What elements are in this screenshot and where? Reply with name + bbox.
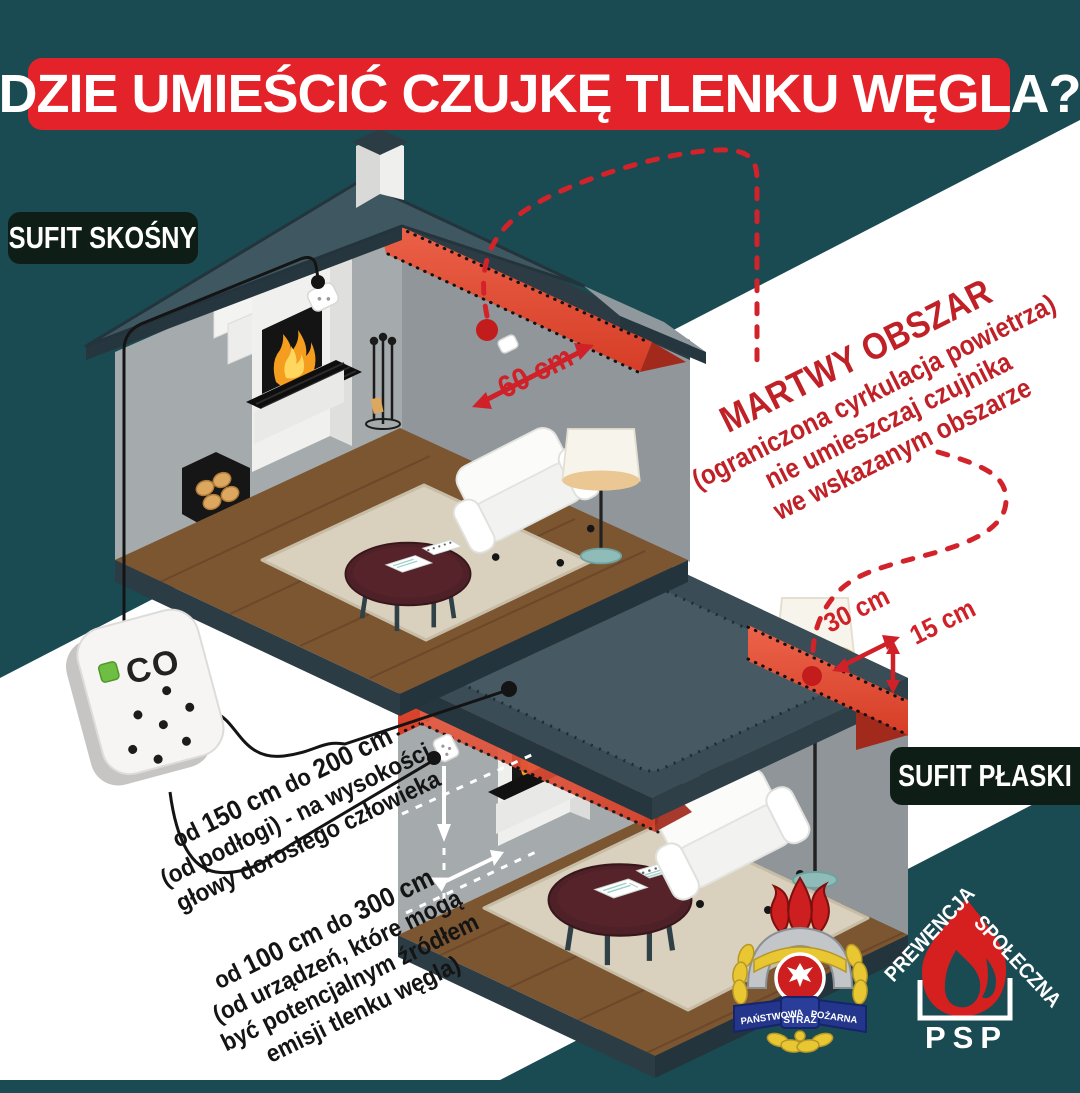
page-title: GDZIE UMIEŚCIĆ CZUJKĘ TLENKU WĘGLA? [0, 63, 1080, 125]
h2-dead-zone-dot [802, 666, 822, 686]
prevention-text-psp: PSP [918, 1020, 1008, 1056]
label-flat-ceiling: SUFIT PŁASKI [890, 747, 1080, 805]
label-sloped-ceiling: SUFIT SKOŚNY [8, 212, 198, 264]
infographic-scene [0, 0, 1080, 1080]
h1-dead-zone-dot [476, 319, 498, 341]
wire-dot [311, 275, 325, 289]
header-banner: GDZIE UMIEŚCIĆ CZUJKĘ TLENKU WĘGLA? [28, 58, 1010, 130]
badge-bottom-leaves [766, 1031, 835, 1054]
detector-led [98, 661, 120, 683]
wire-dot [501, 681, 517, 697]
